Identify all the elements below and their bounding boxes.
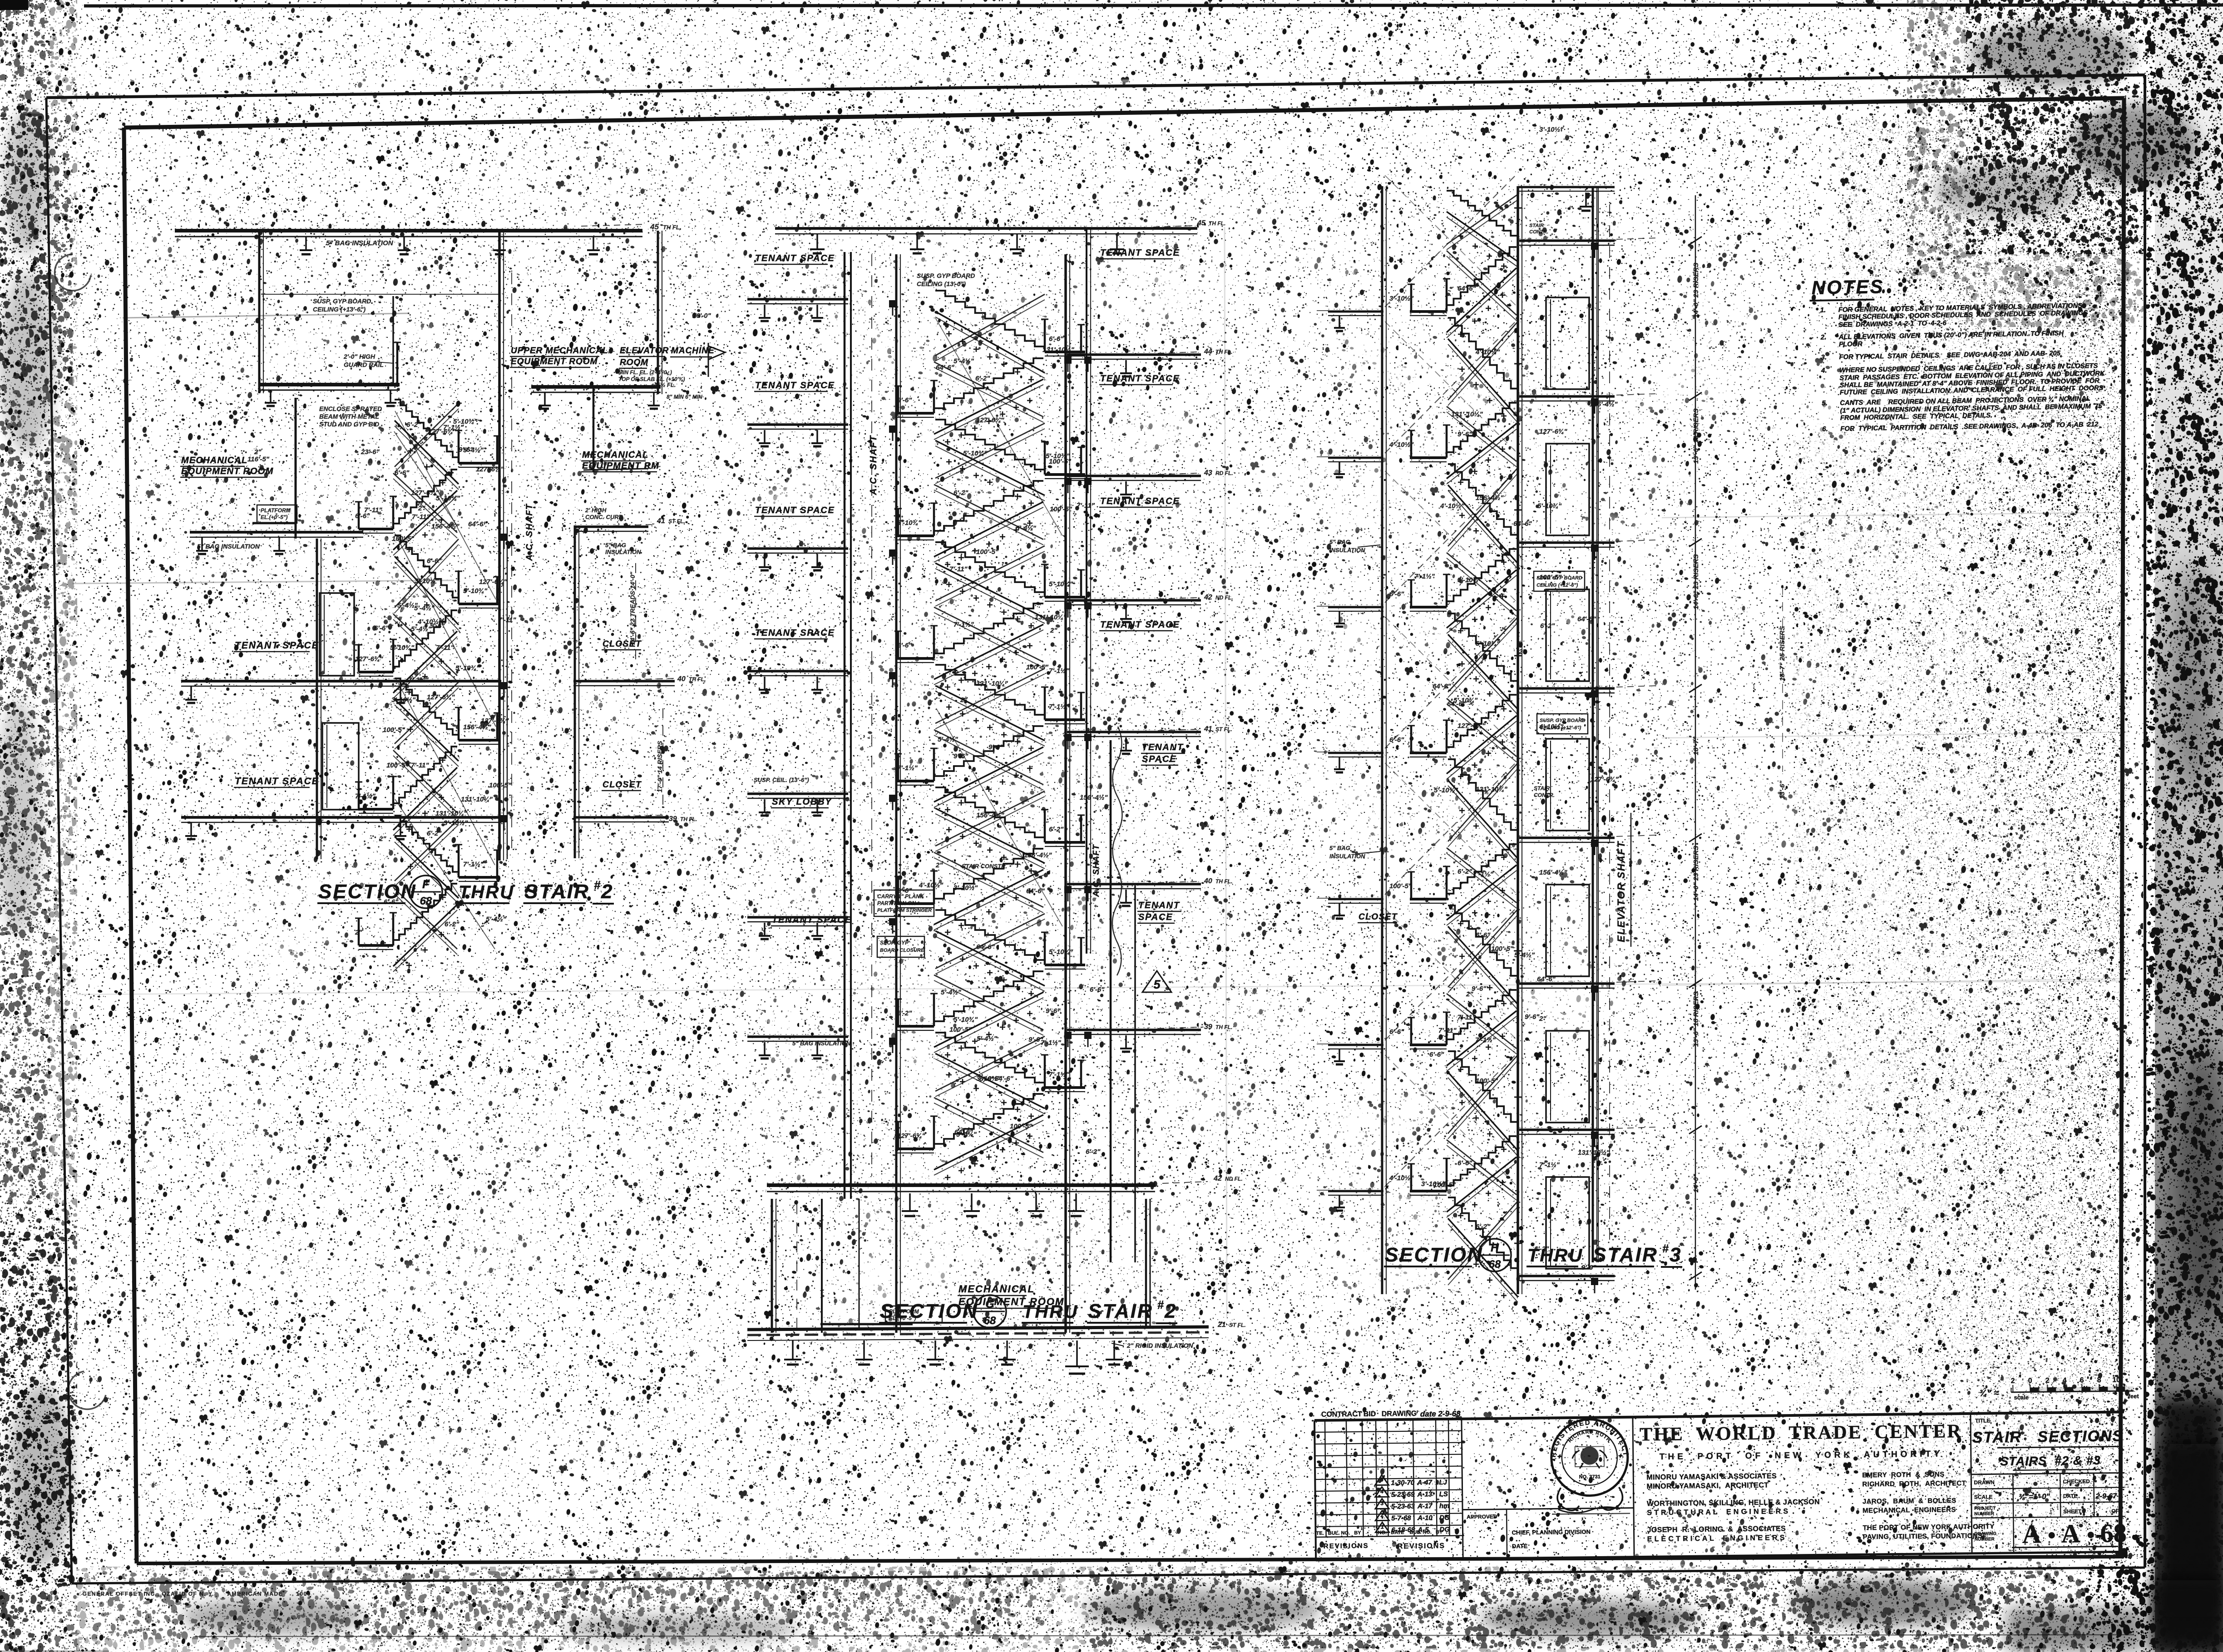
svg-text:TH FL.: TH FL. <box>680 816 697 822</box>
svg-text:TENANT SPACE: TENANT SPACE <box>235 640 319 651</box>
svg-text:ENCLOSE SPRAYED: ENCLOSE SPRAYED <box>319 405 382 412</box>
svg-text:45: 45 <box>650 223 659 231</box>
svg-text:BEAM WITH METAL: BEAM WITH METAL <box>319 413 379 420</box>
svg-text:2": 2" <box>254 448 262 456</box>
svg-text:MECHANICAL: MECHANICAL <box>582 450 648 460</box>
svg-text:● GENERAL OFFSET INC., OZALID: ● GENERAL OFFSET INC., OZALID OF N. Y. A… <box>76 1591 311 1597</box>
svg-text:23'-6": 23'-6" <box>361 448 380 456</box>
svg-text:CONC. CURB: CONC. CURB <box>585 514 623 520</box>
svg-text:2' HIGH: 2' HIGH <box>585 507 607 514</box>
svg-text:EQUIPMENT ROOM: EQUIPMENT ROOM <box>181 466 274 476</box>
svg-text:ROOM: ROOM <box>620 358 648 367</box>
svg-text:127'-6¾": 127'-6¾" <box>355 655 383 663</box>
svg-text:8" MIN 6" MIN: 8" MIN 6" MIN <box>667 394 702 400</box>
svg-text:5'-10¾": 5'-10¾" <box>463 587 488 595</box>
svg-text:CLOSET: CLOSET <box>603 780 642 790</box>
svg-text:39: 39 <box>669 815 677 823</box>
svg-text:EL.(+0'-5"): EL.(+0'-5") <box>261 514 288 520</box>
svg-text:116'-5": 116'-5" <box>247 455 270 463</box>
svg-text:MIN FL. EL. (2+4'-0¿): MIN FL. EL. (2+4'-0¿) <box>618 369 672 376</box>
svg-text:PLATFORM: PLATFORM <box>261 507 291 514</box>
svg-text:MECHANICAL: MECHANICAL <box>181 455 247 465</box>
svg-text:5" BAG: 5" BAG <box>605 542 626 549</box>
svg-text:A.C. SHAFT: A.C. SHAFT <box>525 503 534 561</box>
svg-text:EQUIPMENT ROOM: EQUIPMENT ROOM <box>511 357 598 366</box>
svg-text:41: 41 <box>657 517 665 525</box>
svg-text:16'-0": 16'-0" <box>692 312 711 320</box>
svg-text:ST FL.: ST FL. <box>668 518 685 524</box>
svg-text:CEILING (+13'-6"): CEILING (+13'-6") <box>313 306 366 313</box>
svg-text:5" BAG INSULATION: 5" BAG INSULATION <box>197 543 260 550</box>
svg-text:UPPER MECHANICAL: UPPER MECHANICAL <box>511 346 608 356</box>
svg-text:17'-0" 14 RISERS: 17'-0" 14 RISERS <box>656 741 663 792</box>
svg-text:45½ FL.: 45½ FL. <box>653 381 676 388</box>
svg-text:INSULATION: INSULATION <box>605 549 641 555</box>
svg-text:2'-0" HIGH: 2'-0" HIGH <box>343 353 375 360</box>
svg-text:TENANT SPACE: TENANT SPACE <box>235 776 319 786</box>
svg-text:STUD AND GYP B'D: STUD AND GYP B'D <box>319 420 379 428</box>
svg-text:EQUIPMENT RM: EQUIPMENT RM <box>582 461 659 471</box>
svg-text:TH FL.: TH FL. <box>663 224 681 231</box>
svg-text:SUSP. GYP BOARD: SUSP. GYP BOARD <box>313 297 371 305</box>
svg-text:40: 40 <box>677 675 686 683</box>
svg-text:14'-6" 22 TREADS 14'-0": 14'-6" 22 TREADS 14'-0" <box>629 572 636 645</box>
svg-text:5" BAG INSULATION: 5" BAG INSULATION <box>326 239 394 247</box>
svg-text:TH FL.: TH FL. <box>689 676 706 683</box>
